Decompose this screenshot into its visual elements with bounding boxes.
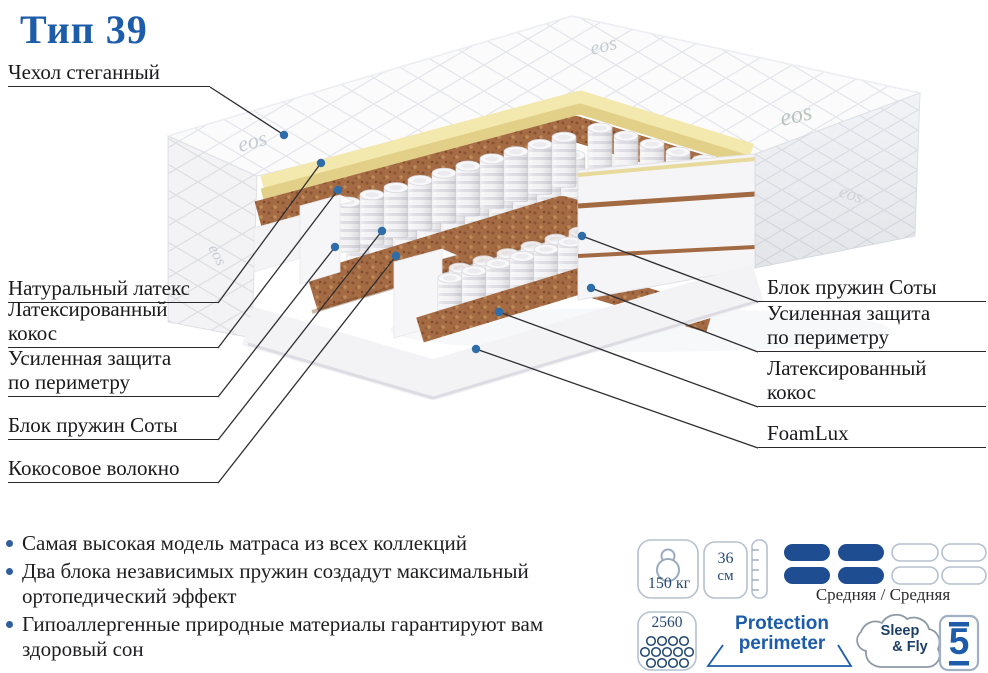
callout-perimeter-right: Усиленная защита по периметру [758,301,986,352]
callout-cover: Чехол стеганный [8,60,210,87]
feature-list: Самая высокая модель матраса из всех кол… [6,531,566,665]
callout-springs-left: Блок пружин Соты [8,413,218,440]
max-weight-value: 150 кг [638,575,700,593]
feature-item: Самая высокая модель матраса из всех кол… [6,531,566,556]
height-unit: см [704,568,747,585]
firmness-scale-icon [784,544,986,584]
springs-dots-icon [641,637,694,668]
callout-springs-right: Блок пружин Соты [758,275,986,302]
page-title: Тип 39 [20,6,148,53]
warranty-value: 5 [940,616,978,668]
bullet-icon [6,621,13,628]
mattress-infographic: eos eos eos eos eos [0,0,988,673]
brand-line2: & Fly [880,639,940,655]
brand-line1: Sleep [870,623,930,639]
callout-perimeter-left: Усиленная защита по периметру [8,346,218,397]
ruler-icon [752,540,767,598]
firmness-label: Средняя / Средняя [780,585,986,605]
springs-count-value: 2560 [638,614,696,632]
callout-foamlux: FoamLux [758,421,986,448]
bullet-icon [6,568,13,575]
callout-latex-coir-left: Латексированный кокос [8,297,218,348]
height-value: 36 [704,550,747,568]
feature-item: Гипоаллергенные природные материалы гара… [6,612,566,662]
bullet-icon [6,540,13,547]
callout-coir-fiber: Кокосовое волокно [8,456,218,483]
protection-line2: perimeter [704,633,860,655]
protection-line1: Protection [704,613,860,635]
feature-item: Два блока независимых пружин создадут ма… [6,559,566,609]
callout-cover-label: Чехол стеганный [8,60,210,84]
callout-latex-coir-right: Латексированный кокос [758,356,986,407]
